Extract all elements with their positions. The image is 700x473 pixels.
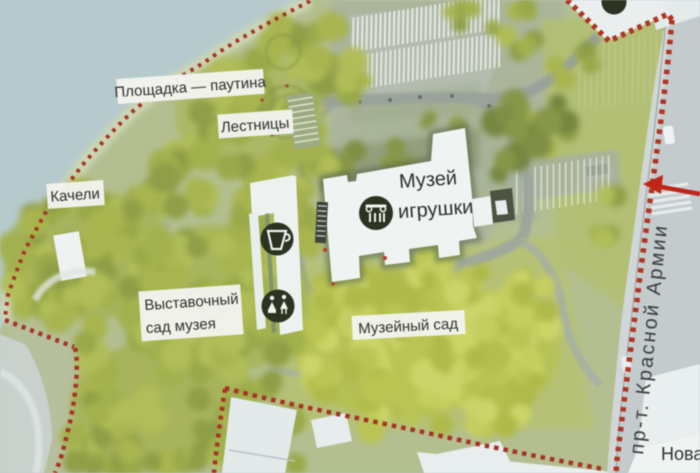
svg-text:Качели: Качели <box>50 185 101 205</box>
svg-text:Нова: Нова <box>661 444 700 464</box>
svg-text:Музей: Музей <box>398 167 458 193</box>
